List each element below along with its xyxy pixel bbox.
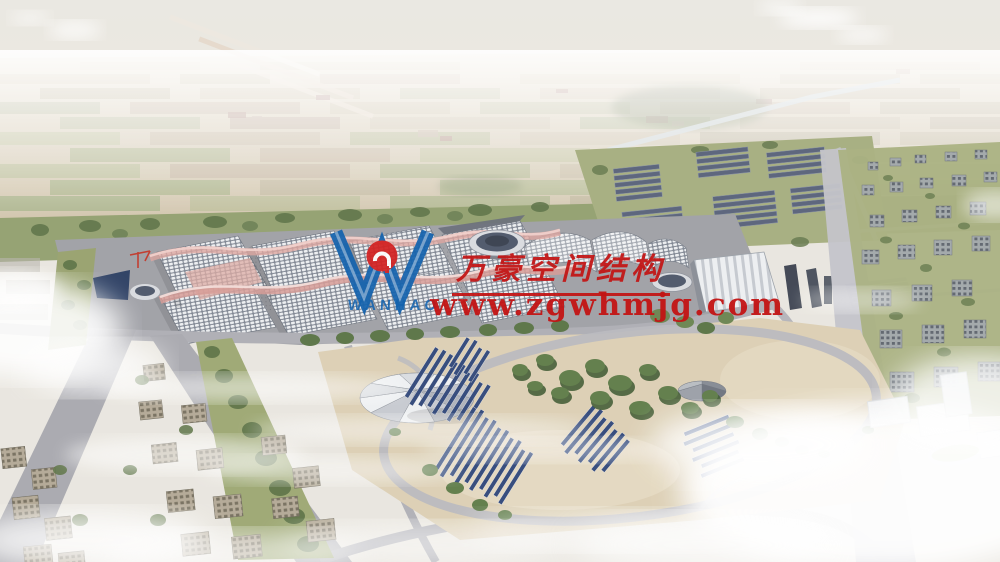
rendered-landscape (0, 0, 1000, 562)
aerial-render-scene: WANHAO 万豪空间结构 www.zgwhmjg.com (0, 0, 1000, 562)
